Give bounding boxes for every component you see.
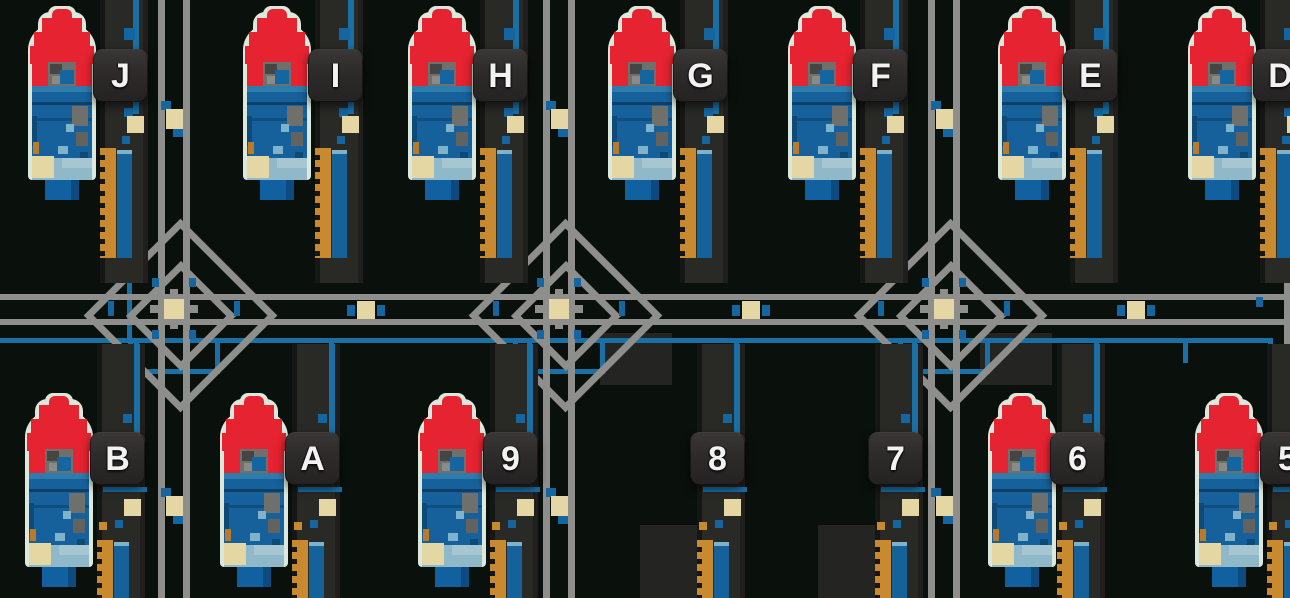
pad-badge-A[interactable]: A [285,432,340,485]
pad-badge-J[interactable]: J [93,49,148,102]
pipe-dot [1282,136,1290,144]
ladder-rail [702,540,713,598]
rocket-shoulder-red [656,62,672,86]
pipe-dot [922,278,929,287]
pad-badge-B[interactable]: B [90,432,145,485]
pipe-dot [173,515,183,524]
rocket-sprite[interactable] [1188,6,1256,200]
pipe-dot [1284,28,1290,40]
pipe-dot [943,128,953,137]
ladder-rail [320,148,331,258]
ladder-chip [877,522,885,530]
pipe-dot [574,278,581,287]
rocket-band-hi [62,158,92,168]
rocket-sprite[interactable] [220,393,288,587]
rocket-detail [281,124,289,132]
pad-badge-label: H [488,59,513,93]
rocket-pad-crate [32,156,54,178]
rocket-sprite[interactable] [243,6,311,200]
rocket-detail [1243,519,1255,533]
rocket-body-hi [792,86,852,92]
pad-badge-label: 8 [708,442,727,476]
rocket-shoulder-red [1236,62,1252,86]
pipe-dot [884,28,895,40]
rocket-engine-shadow [451,180,459,200]
rocket-detail [275,70,289,84]
intersection-center-crate [549,299,569,319]
launch-tower[interactable] [1070,0,1118,283]
tower-pipe [1063,487,1107,492]
conveyor-tick [1087,150,1102,154]
pipe-dot [115,520,123,528]
rocket-body-hi [1199,473,1259,479]
rocket-sprite[interactable] [1195,393,1263,587]
pad-badge-H[interactable]: H [473,49,528,102]
rocket-body-hi [1002,86,1062,92]
ladder-rail [485,148,496,258]
tower-pipe [713,0,719,50]
rocket-detail [244,463,252,471]
rocket-detail [33,142,39,154]
rocket-engine-shadow [1231,180,1239,200]
rocket-body-hi [1192,86,1252,92]
ladder-rail [495,540,506,598]
intersection-arm [960,305,968,313]
launch-tower[interactable] [480,0,528,283]
ladder-rail [1062,540,1073,598]
road-crate [936,109,953,129]
pipe-dot [1083,414,1092,423]
pipe-dot [882,136,890,144]
tower-edge [1113,0,1118,283]
rocket-body-hi [422,473,482,479]
conveyor-tick [877,150,892,154]
rocket-detail [1026,511,1034,519]
tower-crate [1097,116,1114,133]
ladder-rail [865,148,876,258]
rocket-engine-shadow [1031,567,1039,587]
rocket-band-hi [59,545,89,555]
rocket-sprite[interactable] [25,393,93,587]
tower-crate [124,499,141,516]
rocket-detail [1227,457,1241,471]
tower-crate [724,499,741,516]
pipe-tab [377,305,385,316]
pad-badge-D[interactable]: D [1253,49,1290,102]
pad-badge-label: 5 [1278,442,1290,476]
pipe-dot [122,136,130,144]
rocket-detail [30,529,36,541]
rocket-sprite[interactable] [998,6,1066,200]
rocket-sprite[interactable] [988,393,1056,587]
conveyor-tick [497,150,512,154]
pipe-tab [619,301,625,316]
rocket-body-hi [412,86,472,92]
rocket-detail [1022,76,1030,84]
ladder-chip [99,522,107,530]
pad-badge-label: J [111,59,130,93]
ladder-chip [492,522,500,530]
tower-pipe [298,487,342,492]
rocket-detail [264,493,280,513]
pipe-segment [1183,341,1188,363]
rocket-detail [632,76,640,84]
conveyor-tick [114,542,129,546]
rocket-band-hi [254,545,284,555]
launch-tower[interactable] [315,0,363,283]
rocket-pad-crate [422,543,444,565]
road-crate [742,301,760,319]
rocket-detail [63,511,71,519]
pipe-tab [108,301,114,316]
rocket-shoulder-red [1046,62,1062,86]
rocket-detail [1028,146,1038,154]
rocket-detail [1218,146,1228,154]
rocket-band-hi [822,158,852,168]
rocket-engine-shadow [68,567,76,587]
tower-edge [523,0,528,283]
rocket-detail [73,519,85,533]
rocket-detail [60,70,74,84]
rocket-detail [76,132,88,146]
rocket-sprite[interactable] [28,6,96,200]
rocket-shoulder-red [291,62,307,86]
ladder-rail [1075,148,1086,258]
tower-crate [707,116,724,133]
rocket-detail [55,533,65,541]
rocket-body-sep [32,102,92,105]
tower-pipe [134,344,140,434]
rocket-shoulder-red [422,449,438,473]
rocket-shoulder-red [466,449,482,473]
pipe-dot [893,520,901,528]
rocket-shoulder-red [32,62,48,86]
pipe-dot [310,520,318,528]
rocket-detail [456,511,464,519]
tower-pipe [1103,102,1109,114]
conveyor-strip [309,542,324,598]
pipe-dot [959,278,966,287]
pipe-tab [762,305,770,316]
conveyor-strip [892,542,907,598]
pipe-dot [574,330,581,339]
rocket-pad-crate [612,156,634,178]
rocket-detail [656,132,668,146]
rocket-sprite[interactable] [408,6,476,200]
rocket-detail [248,142,254,154]
intersection-arm [170,289,178,297]
ladder-rail [102,540,113,598]
intersection-arm [555,289,563,297]
pipe-dot [189,330,196,339]
rocket-sprite[interactable] [788,6,856,200]
rocket-detail [466,519,478,533]
rocket-detail [1012,463,1020,471]
pipe-tab [1256,297,1263,307]
road-crate [357,301,375,319]
rocket-detail [832,106,848,126]
pipe-dot [152,278,159,287]
conveyor-strip [114,542,129,598]
pad-badge-label: D [1268,59,1290,93]
conveyor-strip [497,150,512,258]
pipe-dot [152,330,159,339]
rocket-detail [273,146,283,154]
pipe-dot [173,128,183,137]
conveyor-tick [1074,542,1089,546]
ladder-rail [1265,148,1276,258]
rocket-detail [49,463,57,471]
conveyor-tick [117,150,132,154]
tower-pipe [133,0,139,50]
pad-badge-E[interactable]: E [1063,49,1118,102]
tower-crate [319,499,336,516]
launch-tower[interactable] [1260,0,1290,283]
rocket-shoulder-red [992,449,1008,473]
tower-pipe [348,0,354,50]
intersection-arm [575,305,583,313]
tower-edge [358,0,363,283]
pipe-dot [1285,520,1290,528]
rocket-detail [1032,493,1048,513]
conveyor-strip [1284,542,1290,598]
rocket-engine-shadow [71,180,79,200]
pipe-tab [1004,301,1010,316]
rocket-pad-crate [247,156,269,178]
road-crate [166,496,183,516]
rocket-band-hi [1229,545,1259,555]
tower-crate [342,116,359,133]
pipe-dot [922,330,929,339]
intersection-center-crate [164,299,184,319]
rocket-body-hi [224,473,284,479]
rocket-detail [1220,70,1234,84]
rocket-engine-shadow [831,180,839,200]
rocket-body-sep [792,102,852,105]
rocket-shoulder-red [1199,449,1215,473]
tower-edge [143,0,148,283]
tower-pipe [513,102,519,114]
rocket-detail [993,529,999,541]
rocket-detail [1036,519,1048,533]
launch-tower[interactable] [680,0,728,283]
tower-pipe [893,0,899,50]
rocket-shoulder-red [29,449,45,473]
rocket-shoulder-red [412,62,428,86]
intersection-arm [555,321,563,329]
pipe-tab [493,301,499,316]
pipe-tab [1117,305,1125,316]
pipe-dot [537,278,544,287]
intersection-arm [190,305,198,313]
intersection-arm [940,321,948,329]
pipe-dot [558,128,568,137]
rocket-sprite[interactable] [608,6,676,200]
rocket-band-hi [277,158,307,168]
pad-badge-5[interactable]: 5 [1260,432,1290,485]
intersection-center-crate [934,299,954,319]
rocket-detail [225,529,231,541]
rocket-detail [72,106,88,126]
conveyor-tick [714,542,729,546]
rocket-shoulder-red [1192,62,1208,86]
tower-pipe [496,487,540,492]
pad-badge-label: I [331,59,340,93]
rocket-detail [69,493,85,513]
rocket-detail [646,124,654,132]
rocket-detail [1219,463,1227,471]
rocket-engine-shadow [263,567,271,587]
rocket-detail [1003,142,1009,154]
tower-pipe [513,0,519,50]
rocket-detail [250,533,260,541]
rocket-sprite[interactable] [418,393,486,587]
pipe-tab [1147,305,1155,316]
rocket-detail [57,457,71,471]
rocket-detail [1239,493,1255,513]
rocket-pad-crate [29,543,51,565]
pipe-dot [124,28,135,40]
road-crate [166,109,183,129]
rocket-detail [818,146,828,154]
rocket-detail [638,146,648,154]
rocket-band-hi [1022,545,1052,555]
rocket-detail [1233,511,1241,519]
ladder-chip [294,522,302,530]
rocket-detail [812,76,820,84]
rocket-pad-crate [1192,156,1214,178]
rocket-detail [1193,142,1199,154]
rocket-engine-shadow [1238,567,1246,587]
pad-badge-I[interactable]: I [308,49,363,102]
ladder-rail [1272,540,1283,598]
tower-pipe [1273,487,1290,492]
rocket-engine-shadow [286,180,294,200]
rocket-band-hi [442,158,472,168]
rocket-shoulder-red [612,62,628,86]
rocket-detail [258,511,266,519]
rocket-body-sep [1192,102,1252,105]
conveyor-strip [1087,150,1102,258]
rocket-detail [1042,106,1058,126]
ladder-chip [1269,522,1277,530]
rocket-band-hi [1032,158,1062,168]
rocket-body-sep [1002,102,1062,105]
pad-badge-label: 6 [1068,442,1087,476]
rocket-detail [826,124,834,132]
conveyor-tick [1277,150,1290,154]
rocket-detail [1232,106,1248,126]
pad-badge-F[interactable]: F [853,49,908,102]
rocket-detail [291,132,303,146]
rocket-detail [1020,457,1034,471]
pipe-dot [123,414,132,423]
rocket-body-hi [32,86,92,92]
conveyor-tick [507,542,522,546]
road-crate [551,109,568,129]
tower-pipe [893,102,899,114]
pipe-dot [959,330,966,339]
rocket-detail [456,132,468,146]
rocket-pad-crate [412,156,434,178]
intersection-arm [920,305,928,313]
pad-badge-label: A [300,442,325,476]
rocket-shoulder-red [76,62,92,86]
rocket-detail [423,529,429,541]
rocket-pad-crate [1002,156,1024,178]
rocket-band-hi [642,158,672,168]
rocket-band-hi [452,545,482,555]
pipe-dot [715,520,723,528]
tower-pipe [1103,0,1109,50]
tower-edge [723,0,728,283]
rocket-detail [440,70,454,84]
tower-pipe [713,102,719,114]
rocket-body-hi [992,473,1052,479]
pipe-dot [189,278,196,287]
rocket-pad-crate [792,156,814,178]
rocket-detail [413,142,419,154]
rocket-detail [613,142,619,154]
conveyor-tick [309,542,324,546]
pad-badge-7[interactable]: 7 [868,432,923,485]
rocket-detail [452,106,468,126]
road-crate [936,496,953,516]
tower-pipe [1094,344,1100,434]
rocket-detail [66,124,74,132]
pad-badge-8[interactable]: 8 [690,432,745,485]
pad-badge-6[interactable]: 6 [1050,432,1105,485]
pad-badge-G[interactable]: G [673,49,728,102]
rocket-detail [52,76,60,84]
rocket-body-sep [422,489,482,492]
rocket-body-sep [224,489,284,492]
pad-badge-9[interactable]: 9 [483,432,538,485]
rocket-detail [462,493,478,513]
rocket-detail [58,146,68,154]
rocket-detail [1046,132,1058,146]
pipe-dot [901,414,910,423]
rocket-engine-shadow [651,180,659,200]
rocket-detail [450,457,464,471]
rocket-detail [446,124,454,132]
launch-tower[interactable] [860,0,908,283]
tower-crate [902,499,919,516]
tower-crate [127,116,144,133]
rocket-body-sep [412,102,472,105]
rocket-detail [442,463,450,471]
launch-tower[interactable] [100,0,148,283]
intersection-arm [940,289,948,297]
rocket-detail [1030,70,1044,84]
rocket-engine-shadow [461,567,469,587]
rocket-detail [793,142,799,154]
pad-badge-label: E [1079,59,1102,93]
tower-crate [1084,499,1101,516]
conveyor-strip [117,150,132,258]
ladder-chip [1059,522,1067,530]
pad-badge-label: G [687,59,713,93]
tower-pipe [133,102,139,114]
rocket-detail [1018,533,1028,541]
conveyor-strip [507,542,522,598]
rocket-body-hi [29,473,89,479]
rocket-detail [432,76,440,84]
conveyor-strip [697,150,712,258]
pipe-dot [504,28,515,40]
tower-edge [903,0,908,283]
rocket-detail [640,70,654,84]
